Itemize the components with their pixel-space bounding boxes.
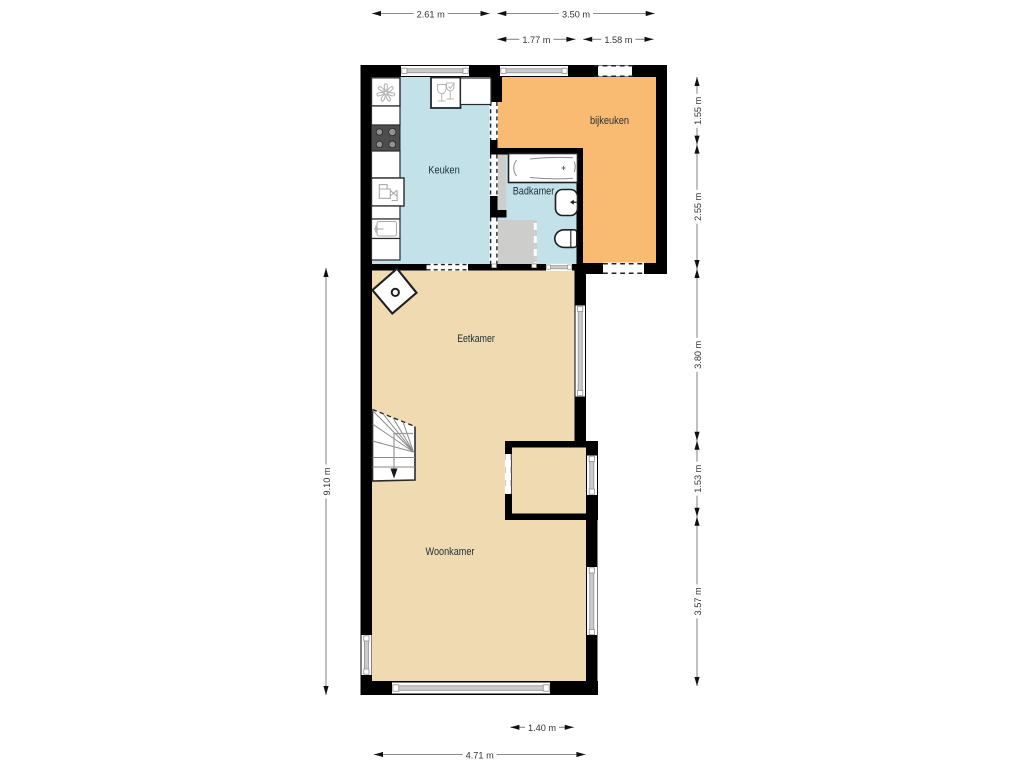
svg-text:1.77 m: 1.77 m xyxy=(522,35,550,45)
svg-text:1.55 m: 1.55 m xyxy=(693,96,703,124)
svg-text:2.61 m: 2.61 m xyxy=(417,9,445,19)
svg-text:2.55 m: 2.55 m xyxy=(693,192,703,220)
svg-text:Woonkamer: Woonkamer xyxy=(426,546,475,558)
svg-text:Keuken: Keuken xyxy=(428,165,460,177)
svg-text:bijkeuken: bijkeuken xyxy=(590,115,629,127)
svg-text:3.50 m: 3.50 m xyxy=(562,9,590,19)
svg-text:3.57 m: 3.57 m xyxy=(693,587,703,615)
svg-text:3.80 m: 3.80 m xyxy=(693,340,703,368)
svg-text:Badkamer: Badkamer xyxy=(513,186,555,198)
svg-text:1.40 m: 1.40 m xyxy=(528,723,556,733)
svg-text:1.58 m: 1.58 m xyxy=(604,35,632,45)
svg-text:Eetkamer: Eetkamer xyxy=(457,333,495,345)
svg-text:9.10 m: 9.10 m xyxy=(322,467,332,495)
svg-text:4.71 m: 4.71 m xyxy=(466,750,494,760)
svg-text:1.53 m: 1.53 m xyxy=(693,464,703,492)
